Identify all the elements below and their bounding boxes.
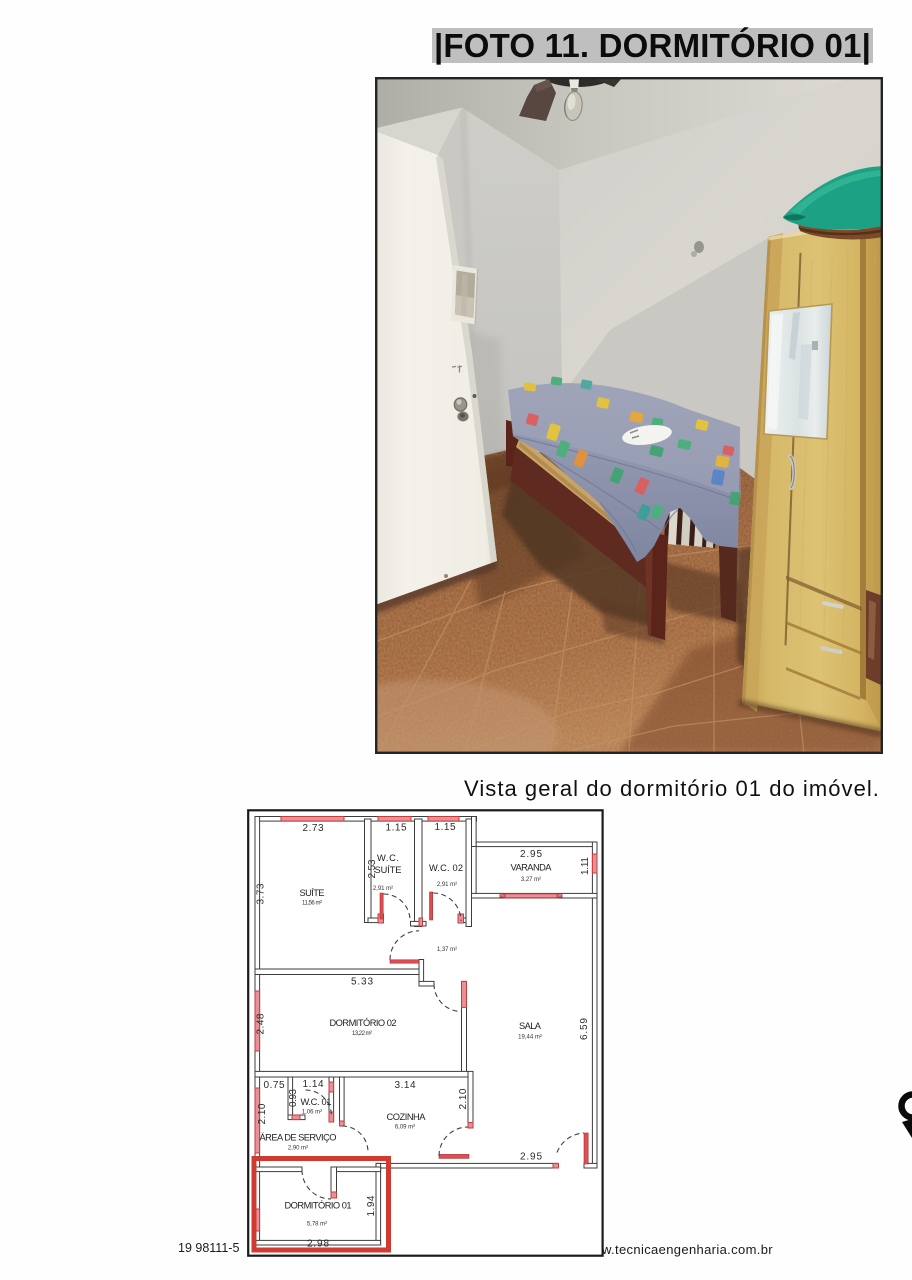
- svg-text:W.C. 02: W.C. 02: [429, 863, 463, 873]
- svg-text:2.98: 2.98: [307, 1239, 329, 1250]
- svg-text:2,90 m²: 2,90 m²: [288, 1146, 308, 1152]
- svg-text:SUÍTE: SUÍTE: [375, 865, 402, 875]
- svg-text:VARANDA: VARANDA: [511, 863, 553, 873]
- svg-text:1.15: 1.15: [435, 822, 456, 833]
- svg-text:11,56 m²: 11,56 m²: [302, 901, 322, 907]
- svg-text:2.73: 2.73: [303, 823, 324, 834]
- svg-text:0.75: 0.75: [264, 1080, 285, 1091]
- svg-text:SUÍTE: SUÍTE: [300, 888, 325, 898]
- svg-text:19,44 m²: 19,44 m²: [518, 1035, 542, 1041]
- svg-text:5.33: 5.33: [351, 977, 373, 988]
- svg-text:3.73: 3.73: [256, 883, 267, 904]
- svg-text:SALA: SALA: [519, 1021, 542, 1031]
- svg-text:1.11: 1.11: [580, 857, 591, 875]
- svg-text:2,91 m²: 2,91 m²: [437, 882, 457, 888]
- svg-text:2.95: 2.95: [520, 849, 542, 860]
- svg-text:6.59: 6.59: [579, 1018, 590, 1040]
- svg-text:6,09 m²: 6,09 m²: [395, 1125, 415, 1131]
- svg-text:5,78 m²: 5,78 m²: [307, 1222, 327, 1228]
- svg-text:1,06 m²: 1,06 m²: [302, 1110, 322, 1116]
- svg-text:3,27 m²: 3,27 m²: [521, 877, 541, 883]
- svg-text:DORMITÓRIO 02: DORMITÓRIO 02: [330, 1018, 397, 1028]
- svg-text:W.C. 01: W.C. 01: [301, 1097, 332, 1107]
- svg-text:1.15: 1.15: [386, 823, 407, 834]
- svg-text:1,37 m²: 1,37 m²: [437, 947, 457, 953]
- svg-text:W.C.: W.C.: [377, 853, 399, 863]
- svg-text:3.14: 3.14: [395, 1080, 416, 1091]
- svg-text:COZINHA: COZINHA: [387, 1112, 427, 1122]
- svg-text:2,91 m²: 2,91 m²: [373, 886, 393, 892]
- svg-text:13,22 m²: 13,22 m²: [352, 1031, 372, 1037]
- svg-text:0.93: 0.93: [288, 1089, 299, 1107]
- svg-text:1.94: 1.94: [366, 1195, 377, 1216]
- svg-text:2.48: 2.48: [256, 1013, 267, 1034]
- svg-text:DORMITÓRIO 01: DORMITÓRIO 01: [285, 1201, 352, 1211]
- svg-text:ÁREA DE SERVIÇO: ÁREA DE SERVIÇO: [260, 1133, 337, 1143]
- svg-text:1.14: 1.14: [303, 1079, 324, 1090]
- svg-text:2.10: 2.10: [458, 1088, 469, 1109]
- svg-text:2.10: 2.10: [257, 1103, 268, 1124]
- svg-text:2.95: 2.95: [520, 1152, 542, 1163]
